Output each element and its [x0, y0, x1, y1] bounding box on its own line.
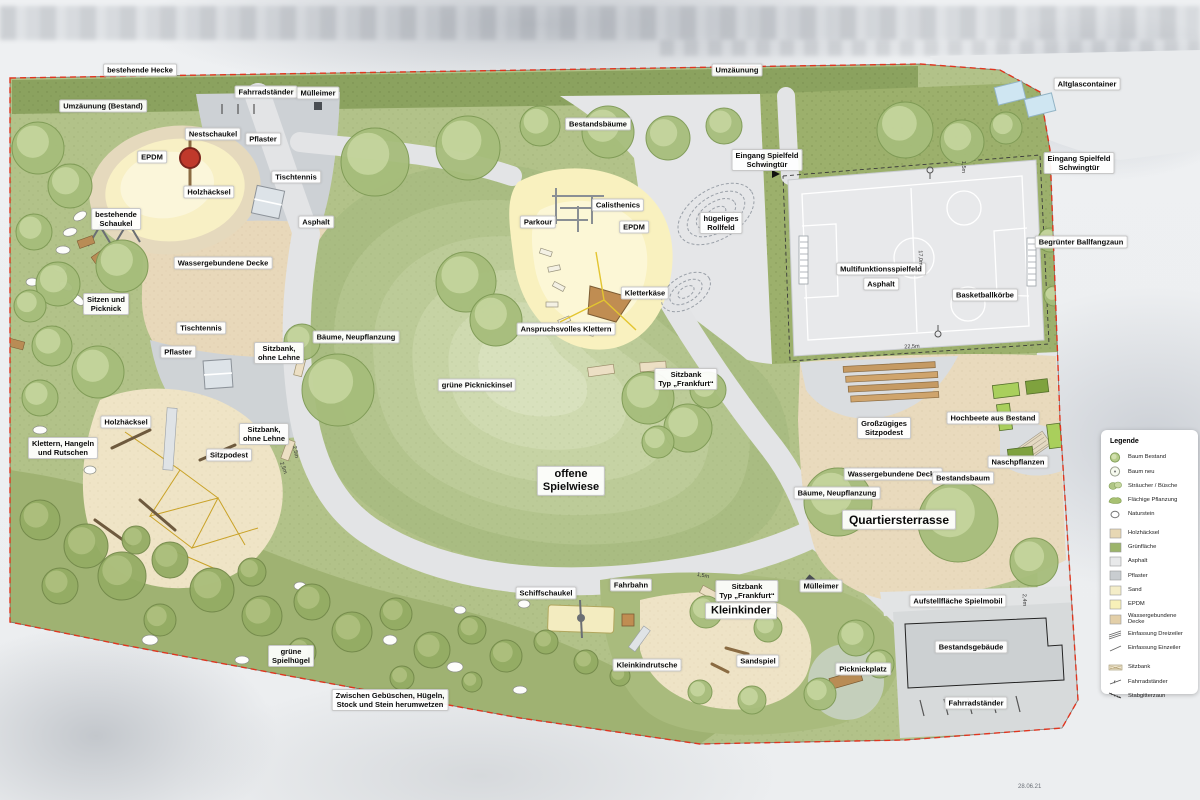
legend-item-label: Baum neu — [1128, 469, 1154, 475]
tree — [96, 240, 148, 292]
fill-swatch-icon — [1108, 528, 1123, 539]
bikestand-swatch-icon — [1108, 676, 1123, 687]
tree — [98, 552, 146, 600]
tree — [738, 686, 766, 714]
edge3-swatch-icon — [1108, 629, 1123, 640]
legend-panel: Legende Baum BestandBaum neuSträucher / … — [1101, 430, 1198, 694]
park-area — [0, 50, 1200, 800]
tree — [610, 666, 630, 686]
legend-item-label: Holzhäcksel — [1128, 530, 1159, 536]
legend-item: Holzhäcksel — [1108, 528, 1191, 539]
edge1-swatch-icon — [1108, 643, 1123, 654]
legend-item-label: EPDM — [1128, 601, 1145, 607]
tree — [294, 584, 330, 620]
tree — [1044, 286, 1064, 306]
legend-item-label: Einfassung Einzeiler — [1128, 645, 1181, 651]
fence-swatch-icon — [1108, 690, 1123, 701]
tree — [646, 116, 690, 160]
legend-item-label: Asphalt — [1128, 558, 1147, 564]
legend-item: Flächige Pflanzung — [1108, 495, 1191, 506]
tree — [144, 604, 176, 636]
legend-item: Sitzbank — [1108, 662, 1191, 673]
tree — [690, 372, 726, 408]
tree — [754, 614, 782, 642]
legend-title: Legende — [1110, 438, 1191, 445]
tree — [470, 294, 522, 346]
tree — [16, 214, 52, 250]
tree-existing-swatch-icon — [1108, 452, 1123, 463]
tree — [64, 524, 108, 568]
tree — [20, 500, 60, 540]
tree-new-swatch-icon — [1108, 466, 1123, 477]
legend-item: Sand — [1108, 585, 1191, 596]
tree — [122, 526, 150, 554]
legend-item-label: Naturstein — [1128, 511, 1154, 517]
shrubs-swatch-icon — [1108, 480, 1123, 491]
fill-swatch-icon — [1108, 570, 1123, 581]
tree — [574, 650, 598, 674]
tree — [1038, 228, 1062, 252]
tree — [918, 482, 998, 562]
tree — [804, 468, 872, 536]
parking-area — [880, 586, 1078, 738]
tree — [1010, 538, 1058, 586]
tree — [877, 102, 933, 158]
tree — [622, 372, 674, 424]
tree — [390, 666, 414, 690]
tree — [534, 630, 558, 654]
tree — [332, 612, 372, 652]
legend-item-label: Flächige Pflanzung — [1128, 497, 1177, 503]
tree — [284, 324, 320, 360]
site-plan-drawing — [0, 0, 1200, 800]
legend-item-label: Wassergebundene Decke — [1128, 613, 1191, 626]
legend-item-label: Fahrradständer — [1128, 679, 1168, 685]
tree — [341, 128, 409, 196]
tree — [380, 598, 412, 630]
legend-item: Wassergebundene Decke — [1108, 613, 1191, 626]
legend-item-label: Grünfläche — [1128, 544, 1156, 550]
legend-item-label: Sand — [1128, 587, 1142, 593]
legend-item: Baum neu — [1108, 466, 1191, 477]
stone-swatch-icon — [1108, 509, 1123, 520]
legend-item: Asphalt — [1108, 556, 1191, 567]
legend-item: Grünfläche — [1108, 542, 1191, 553]
bestand-building — [905, 618, 1064, 688]
tree — [990, 112, 1022, 144]
tree — [48, 164, 92, 208]
tree — [302, 354, 374, 426]
tree — [838, 620, 874, 656]
tree — [190, 568, 234, 612]
legend-item: Stabgitterzaun — [1108, 690, 1191, 701]
tree — [804, 678, 836, 710]
plan-date: 28.06.21 — [1018, 784, 1041, 790]
tree — [436, 116, 500, 180]
fill-swatch-icon — [1108, 542, 1123, 553]
legend-item: Pflaster — [1108, 570, 1191, 581]
legend-item: Baum Bestand — [1108, 452, 1191, 463]
tree — [642, 426, 674, 458]
tree — [414, 632, 450, 668]
legend-item: Fahrradständer — [1108, 676, 1191, 687]
tree — [12, 122, 64, 174]
tree — [940, 120, 984, 164]
planting-swatch-icon — [1108, 495, 1123, 506]
legend-item-label: Sitzbank — [1128, 664, 1150, 670]
tree — [242, 596, 282, 636]
tree — [462, 672, 482, 692]
legend-item: Sträucher / Büsche — [1108, 480, 1191, 491]
tree — [32, 326, 72, 366]
legend-item: Naturstein — [1108, 509, 1191, 520]
fill-swatch-icon — [1108, 585, 1123, 596]
legend-list: Baum BestandBaum neuSträucher / BüscheFl… — [1108, 452, 1191, 701]
fill-swatch-icon — [1108, 599, 1123, 610]
legend-item: Einfassung Einzeiler — [1108, 643, 1191, 654]
tree — [866, 650, 894, 678]
tree — [690, 596, 722, 628]
tree — [706, 108, 742, 144]
legend-item-label: Einfassung Dreizeiler — [1128, 631, 1183, 637]
tree — [42, 568, 78, 604]
bench-swatch-icon — [1108, 662, 1123, 673]
tree — [72, 346, 124, 398]
fill-swatch-icon — [1108, 614, 1123, 625]
tree — [688, 680, 712, 704]
tree — [458, 616, 486, 644]
tree — [238, 558, 266, 586]
multifunction-field — [783, 155, 1049, 361]
legend-item-label: Pflaster — [1128, 573, 1148, 579]
tree — [152, 542, 188, 578]
legend-item-label: Sträucher / Büsche — [1128, 483, 1177, 489]
tree — [582, 106, 634, 158]
tree — [288, 638, 316, 666]
legend-item-label: Baum Bestand — [1128, 454, 1166, 460]
legend-item: EPDM — [1108, 599, 1191, 610]
tree — [22, 380, 58, 416]
legend-item-label: Stabgitterzaun — [1128, 693, 1165, 699]
fill-swatch-icon — [1108, 556, 1123, 567]
legend-item: Einfassung Dreizeiler — [1108, 629, 1191, 640]
tree — [14, 290, 46, 322]
tree — [520, 106, 560, 146]
tree — [490, 640, 522, 672]
